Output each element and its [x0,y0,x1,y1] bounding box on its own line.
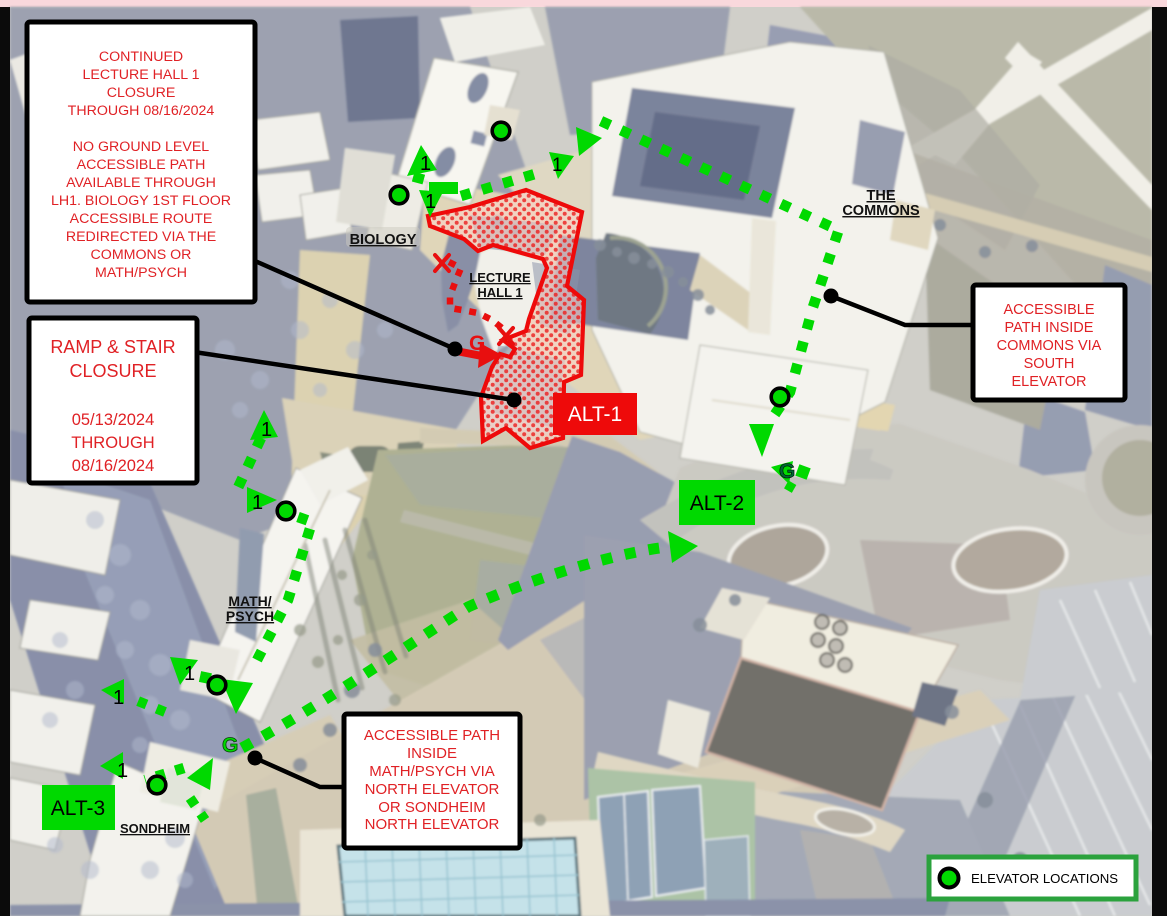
svg-text:08/16/2024: 08/16/2024 [72,457,155,475]
svg-text:1: 1 [184,663,195,685]
svg-text:G: G [469,332,485,355]
svg-text:LH1. BIOLOGY 1ST FLOOR: LH1. BIOLOGY 1ST FLOOR [51,193,231,209]
svg-text:INSIDE: INSIDE [407,745,457,762]
svg-text:HALL 1: HALL 1 [477,285,522,300]
svg-text:1: 1 [117,760,128,782]
svg-text:1: 1 [252,492,263,514]
svg-text:ACCESSIBLE ROUTE: ACCESSIBLE ROUTE [70,211,213,227]
svg-text:ACCESSIBLE PATH: ACCESSIBLE PATH [77,157,206,173]
svg-text:1: 1 [113,687,124,709]
svg-text:NORTH ELEVATOR: NORTH ELEVATOR [365,781,500,798]
svg-text:NO GROUND LEVEL: NO GROUND LEVEL [73,139,209,155]
svg-text:THROUGH 08/16/2024: THROUGH 08/16/2024 [68,103,215,119]
svg-text:CLOSURE: CLOSURE [69,361,156,381]
svg-text:CLOSURE: CLOSURE [107,85,176,101]
svg-text:AVAILABLE THROUGH: AVAILABLE THROUGH [66,175,216,191]
svg-text:COMMONS OR: COMMONS OR [91,247,192,263]
svg-text:PSYCH: PSYCH [226,608,274,624]
svg-text:NORTH ELEVATOR: NORTH ELEVATOR [365,816,500,833]
svg-text:LECTURE: LECTURE [469,270,531,285]
svg-text:1: 1 [261,419,272,441]
svg-text:1: 1 [425,191,436,213]
svg-text:ELEVATOR LOCATIONS: ELEVATOR LOCATIONS [971,871,1118,886]
svg-text:ALT-3: ALT-3 [51,797,105,820]
svg-text:BIOLOGY: BIOLOGY [350,232,417,248]
svg-text:REDIRECTED VIA THE: REDIRECTED VIA THE [66,229,216,245]
svg-text:SOUTH: SOUTH [1024,356,1075,372]
svg-text:THROUGH: THROUGH [71,434,154,452]
svg-text:ALT-1: ALT-1 [568,403,622,426]
svg-text:OR SONDHEIM: OR SONDHEIM [378,799,486,816]
svg-text:MATH/PSYCH VIA: MATH/PSYCH VIA [369,763,495,780]
svg-text:PATH INSIDE: PATH INSIDE [1005,320,1094,336]
svg-text:ACCESSIBLE: ACCESSIBLE [1003,302,1094,318]
svg-text:ELEVATOR: ELEVATOR [1012,374,1087,390]
svg-text:1: 1 [552,155,563,176]
svg-text:CONTINUED: CONTINUED [99,49,183,65]
svg-text:MATH/PSYCH: MATH/PSYCH [95,265,187,281]
svg-text:SONDHEIM: SONDHEIM [120,821,190,836]
svg-text:05/13/2024: 05/13/2024 [72,411,155,429]
svg-text:THE: THE [867,188,896,204]
svg-text:G: G [222,734,238,757]
svg-text:COMMONS VIA: COMMONS VIA [997,338,1102,354]
svg-text:COMMONS: COMMONS [842,203,920,219]
svg-text:MATH/: MATH/ [228,593,271,609]
svg-text:RAMP & STAIR: RAMP & STAIR [50,337,175,357]
svg-text:LECTURE HALL 1: LECTURE HALL 1 [83,67,200,83]
svg-text:G: G [779,460,795,483]
svg-text:ALT-2: ALT-2 [690,492,744,515]
svg-text:1: 1 [420,153,431,175]
svg-text:ACCESSIBLE PATH: ACCESSIBLE PATH [364,727,500,744]
